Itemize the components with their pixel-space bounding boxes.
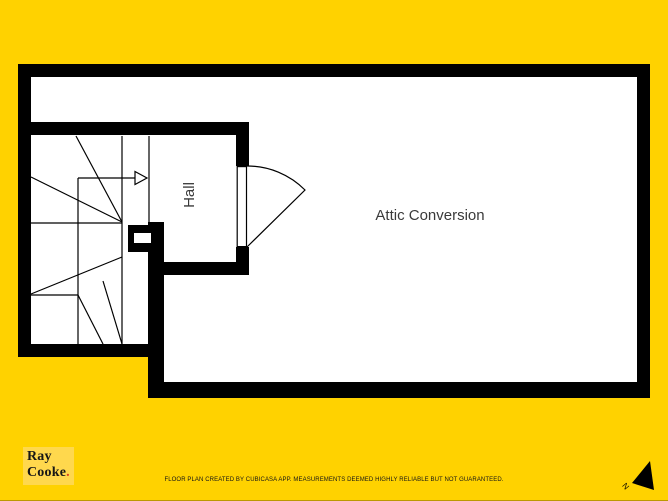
disclaimer-text: FLOOR PLAN CREATED BY CUBICASA APP. MEAS… [0, 477, 668, 483]
logo-line1: Ray [27, 449, 74, 465]
room-label-attic-conversion: Attic Conversion [350, 208, 510, 224]
floor-plan-page: N Attic Conversion Hall Ray Cooke. FLOOR… [0, 0, 668, 501]
understair-niche [134, 233, 151, 243]
floor-plan-drawing: N [0, 0, 668, 501]
room-label-hall: Hall [182, 163, 198, 227]
